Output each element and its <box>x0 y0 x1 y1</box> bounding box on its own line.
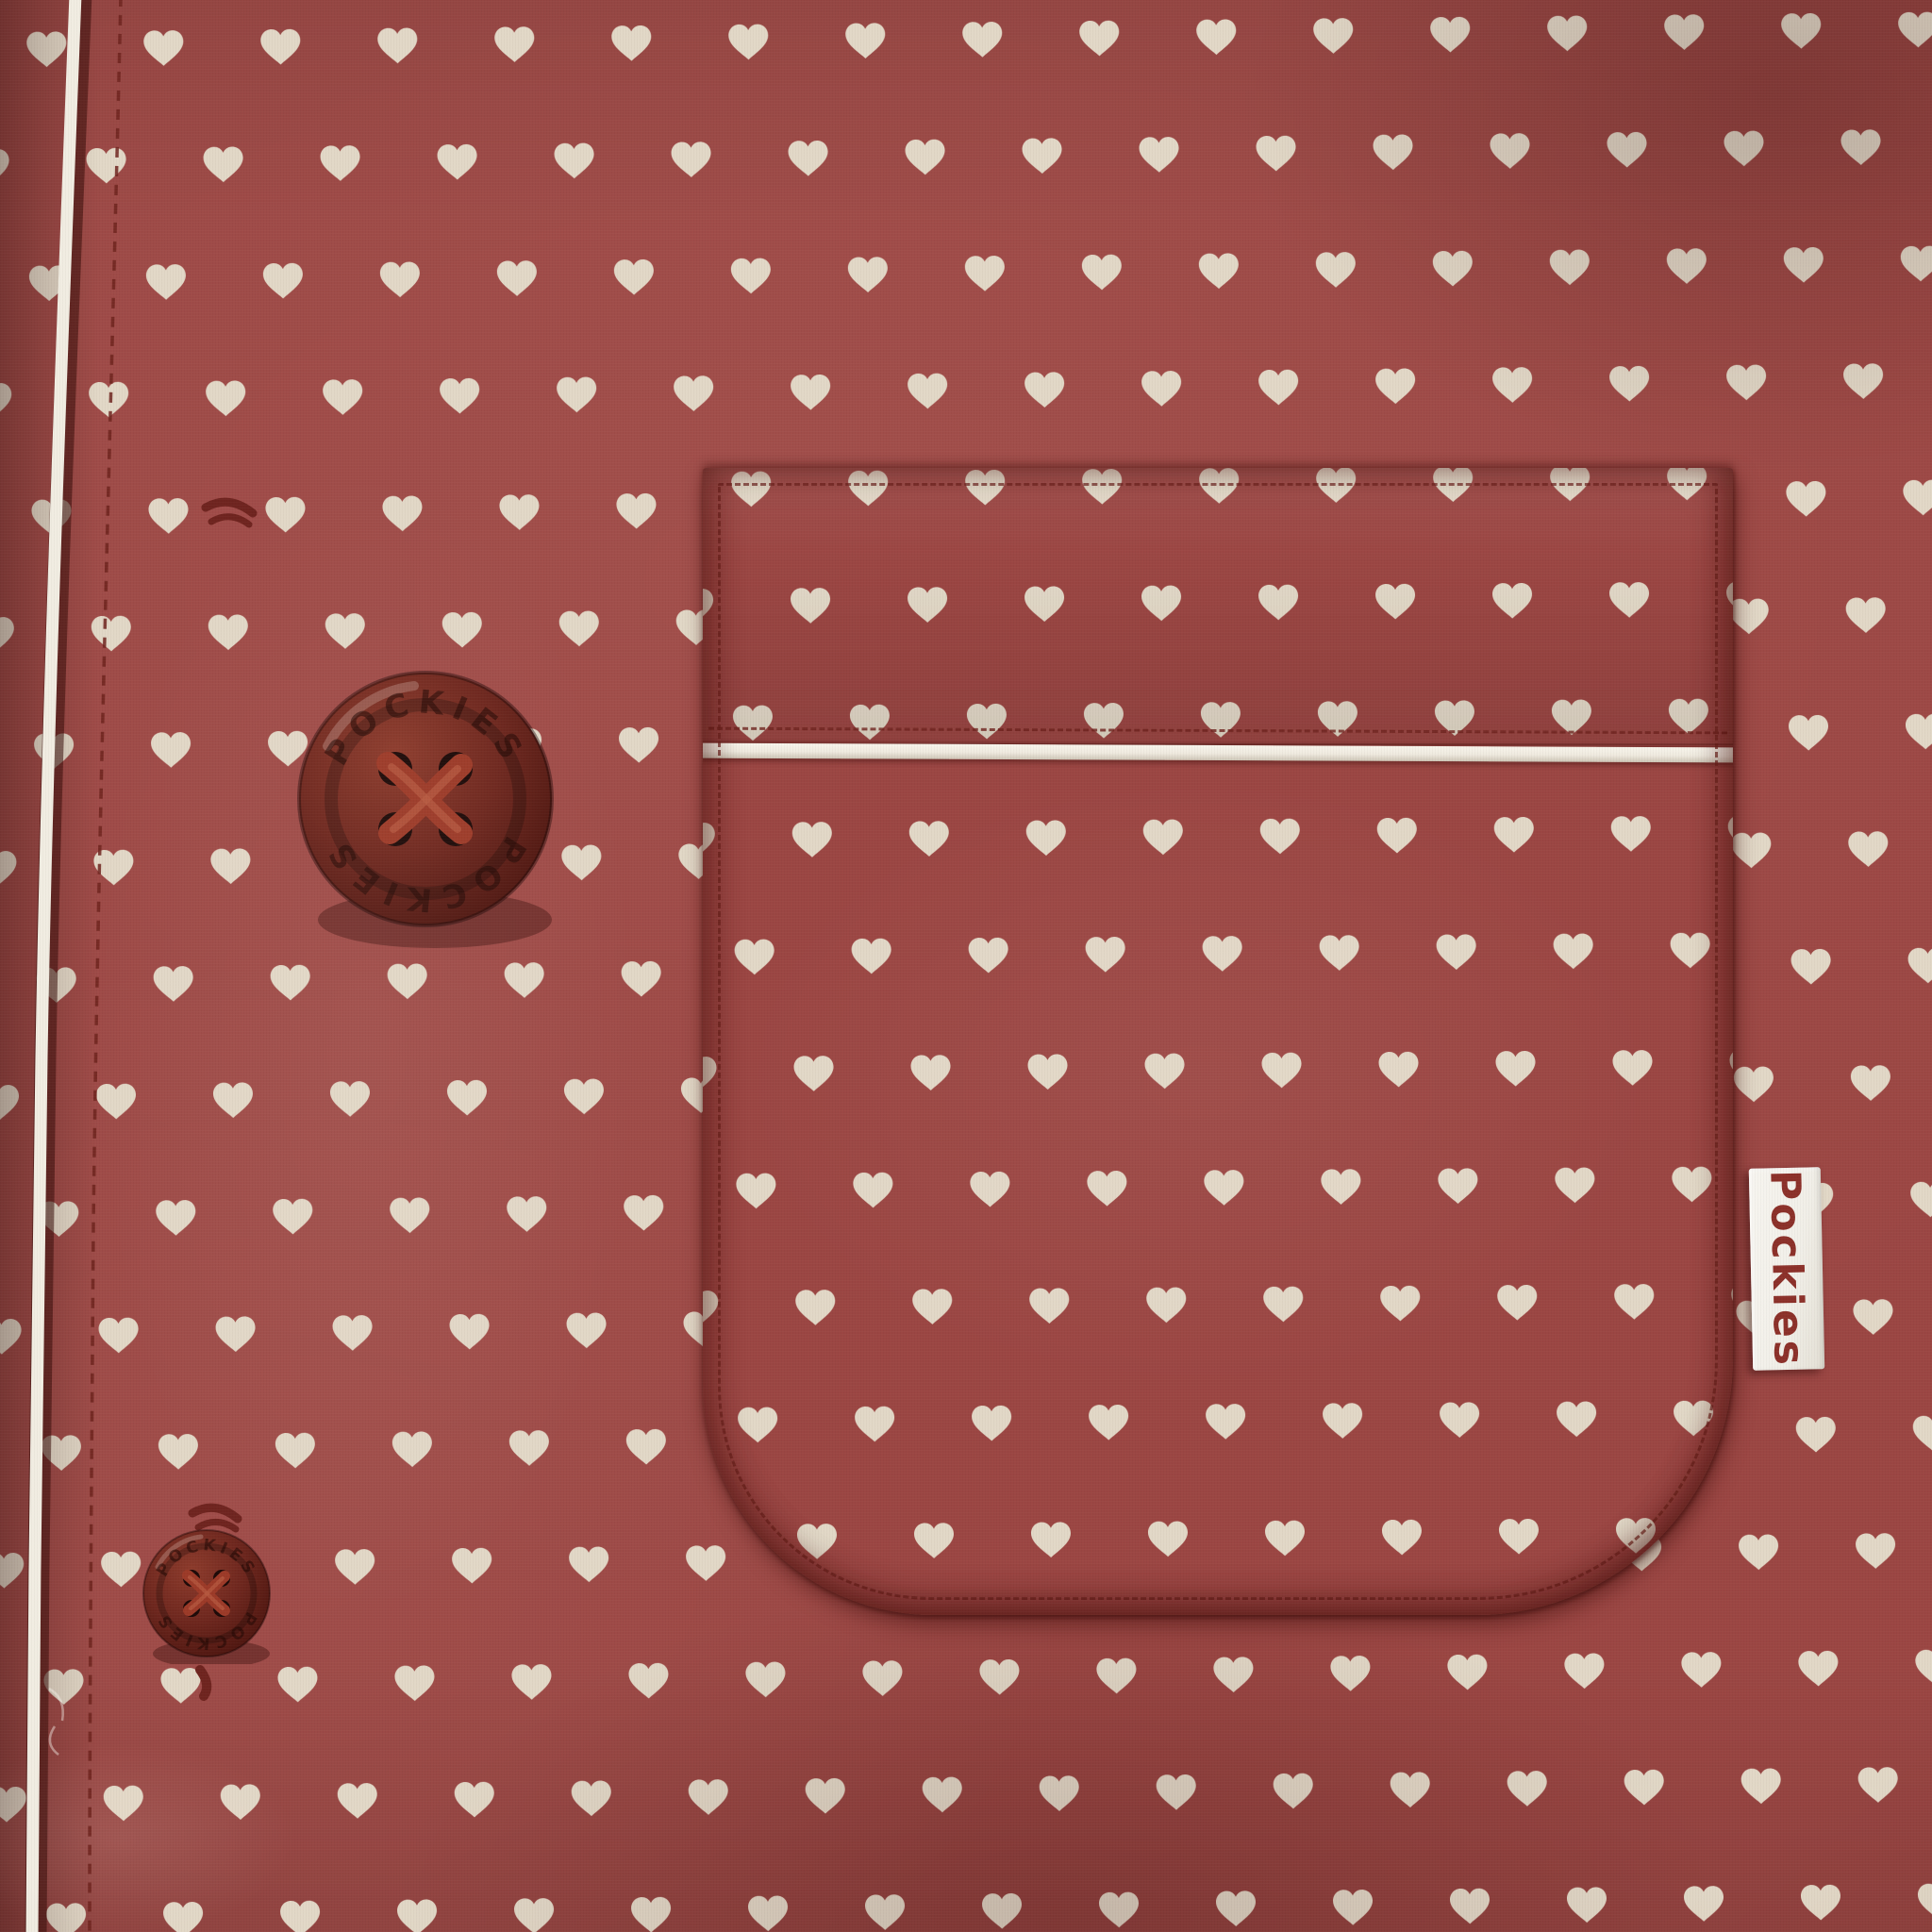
placket-stitch <box>90 0 121 1932</box>
loose-threads <box>49 1689 63 1755</box>
pocket-shading <box>703 468 1733 1615</box>
brand-tag: Pockies <box>1749 1167 1824 1371</box>
shirt-button-top: POCKIES POCKIES <box>142 516 284 658</box>
buttonhole-thread <box>192 502 253 1696</box>
brand-tag-label: Pockies <box>1760 1170 1812 1369</box>
shirt-button-bottom: POCKIES POCKIES <box>136 1523 277 1664</box>
chest-pocket <box>703 468 1733 1615</box>
product-photo: POCKIES POCKIES <box>0 0 1932 1932</box>
